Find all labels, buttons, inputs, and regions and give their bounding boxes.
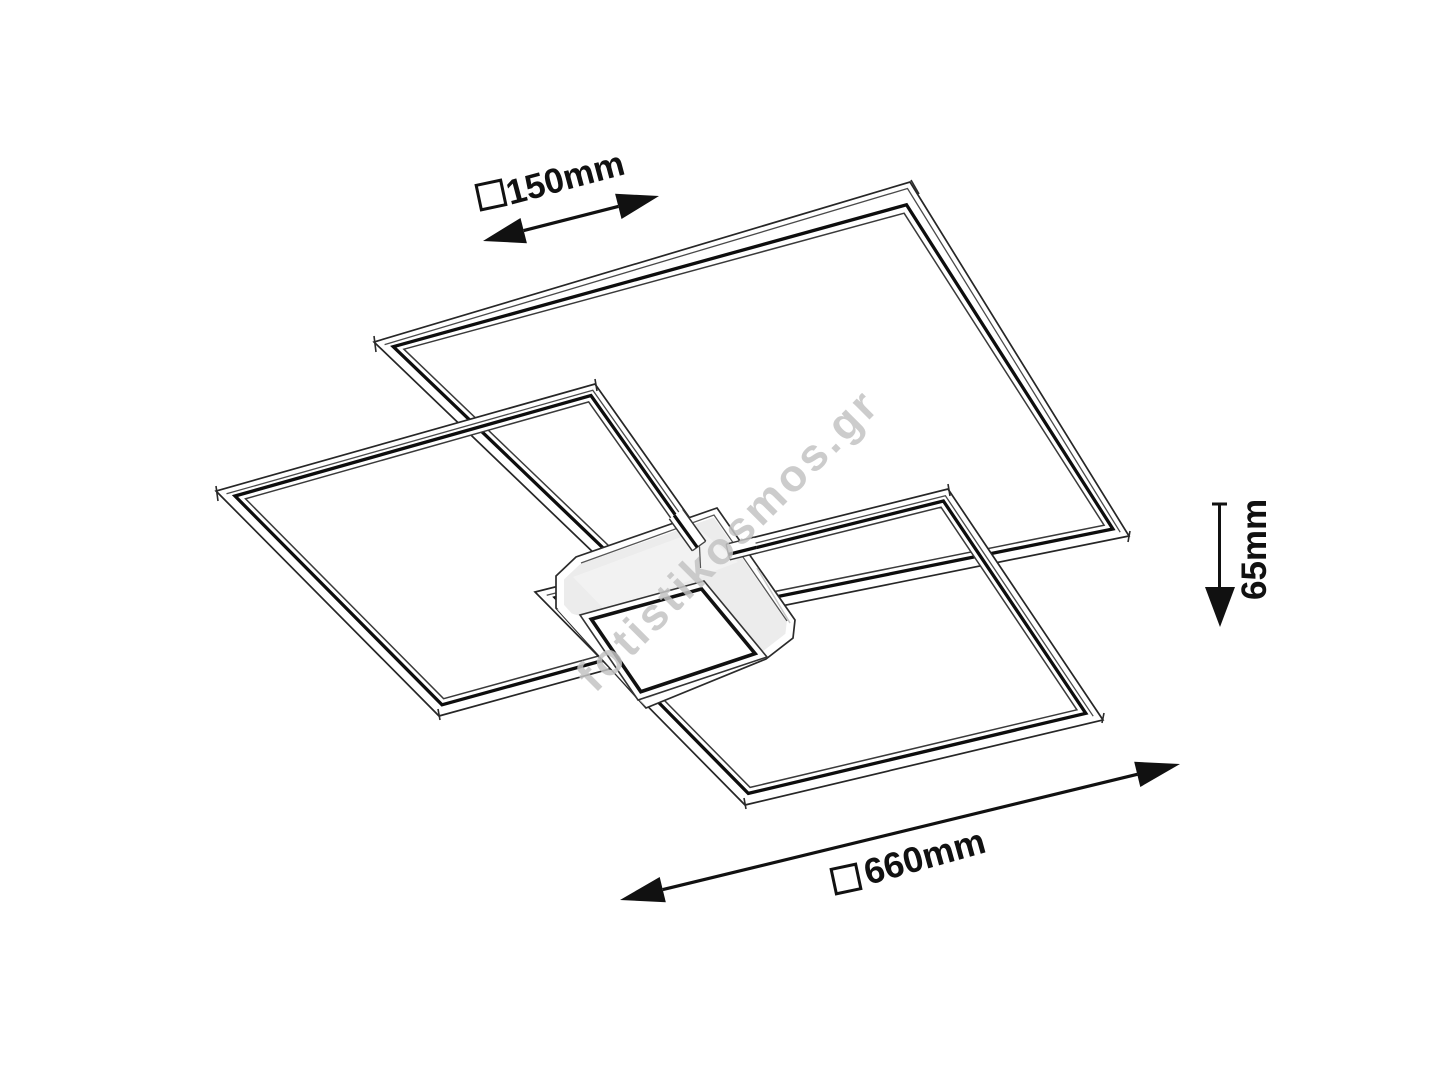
svg-text:65mm: 65mm	[1235, 499, 1274, 600]
